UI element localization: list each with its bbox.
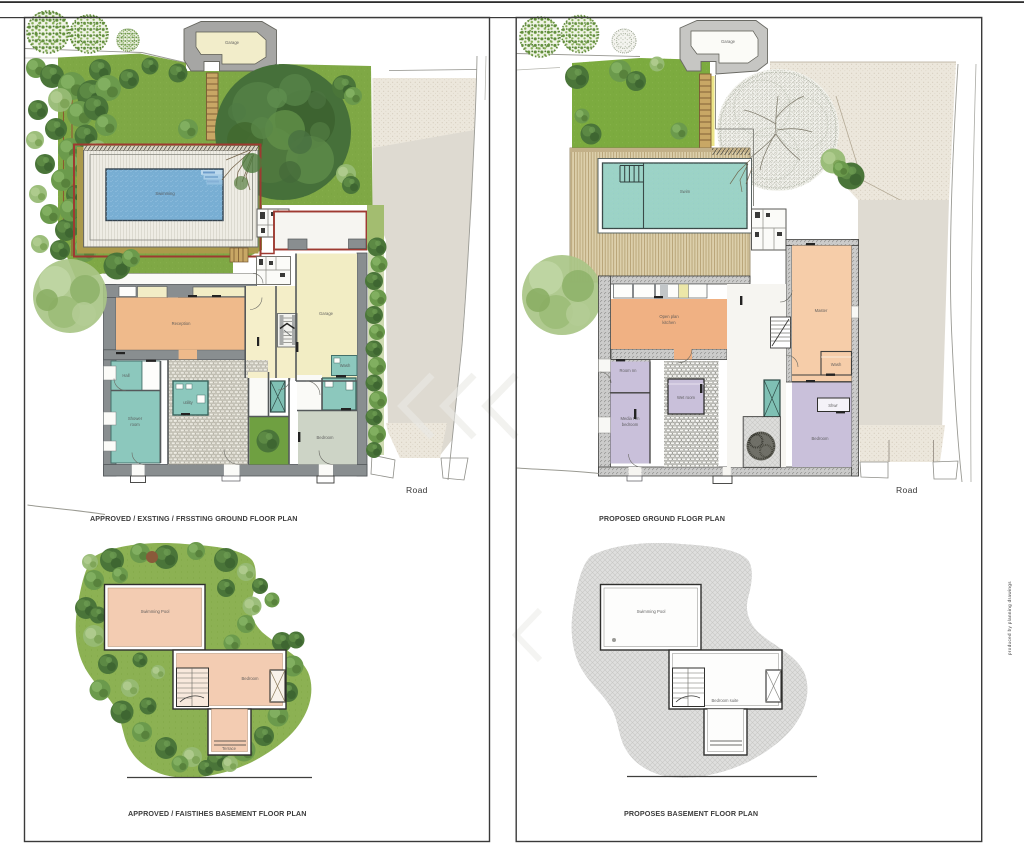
svg-text:bedroom: bedroom — [622, 422, 639, 427]
svg-text:Bedroom: Bedroom — [317, 435, 335, 440]
svg-text:Road: Road — [896, 485, 918, 495]
svg-text:Swim: Swim — [680, 189, 691, 194]
svg-text:Wash: Wash — [831, 362, 842, 367]
svg-text:Wet room: Wet room — [677, 395, 696, 400]
svg-text:Shwr: Shwr — [828, 403, 838, 408]
svg-text:Road: Road — [406, 485, 428, 495]
svg-text:Shower: Shower — [128, 416, 143, 421]
svg-text:Media Rm: Media Rm — [620, 416, 640, 421]
svg-text:PROPOSED GRGUND FLOGR PLAN: PROPOSED GRGUND FLOGR PLAN — [599, 514, 725, 523]
svg-text:Reception: Reception — [172, 321, 192, 326]
svg-text:kitchen: kitchen — [662, 320, 676, 325]
svg-text:Room nn: Room nn — [620, 368, 638, 373]
svg-text:Bedroom: Bedroom — [242, 676, 260, 681]
svg-text:Garage: Garage — [319, 311, 334, 316]
svg-text:Terrace: Terrace — [222, 746, 237, 751]
svg-text:Wash: Wash — [340, 363, 351, 368]
svg-text:Swimming Pool: Swimming Pool — [637, 609, 666, 614]
svg-text:PROPOSES BASEMENT FLOOR PLAN: PROPOSES BASEMENT FLOOR PLAN — [624, 809, 758, 818]
svg-text:produced by planning drawings: produced by planning drawings — [1007, 581, 1012, 655]
svg-text:Swimming Pool: Swimming Pool — [141, 609, 170, 614]
svg-text:utility: utility — [183, 400, 193, 405]
svg-text:Bedroom suite: Bedroom suite — [712, 698, 740, 703]
svg-text:Garage: Garage — [721, 39, 736, 44]
svg-text:Garage: Garage — [225, 40, 240, 45]
svg-text:Swimming: Swimming — [155, 191, 175, 196]
svg-text:APPROVED / FAISTIHES BASEMENT: APPROVED / FAISTIHES BASEMENT FLOOR PLAN — [128, 809, 307, 818]
svg-text:Master: Master — [815, 308, 828, 313]
svg-text:room: room — [130, 422, 140, 427]
svg-text:APPROVED / EXSTING / FRSSTING: APPROVED / EXSTING / FRSSTING GROUND FLO… — [90, 514, 298, 523]
svg-text:Hall: Hall — [122, 373, 129, 378]
svg-text:Bedroom: Bedroom — [812, 436, 830, 441]
svg-text:Open plan: Open plan — [659, 314, 679, 319]
